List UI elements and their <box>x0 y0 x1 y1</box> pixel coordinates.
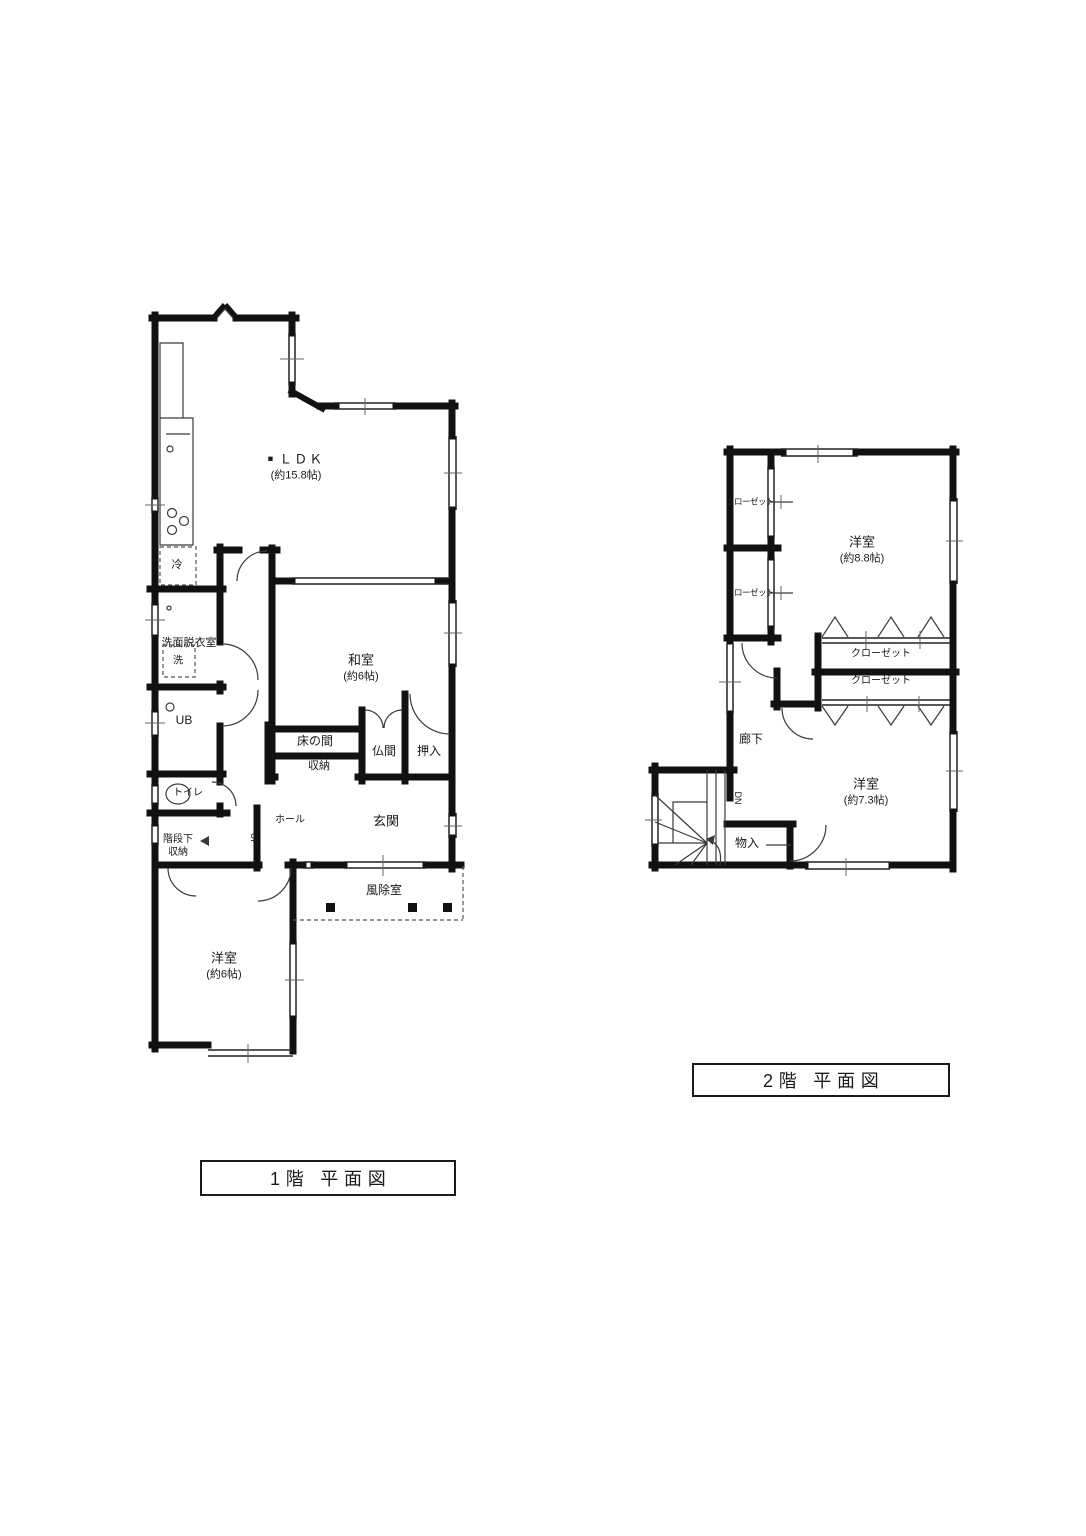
closet-label-mid-top: クローゼット <box>851 648 911 661</box>
closet-label-left-bottom: クローゼット <box>726 587 774 598</box>
sink-faucet <box>167 446 173 452</box>
floor2-door-arcs <box>742 643 826 861</box>
stove-burner-3 <box>168 526 177 535</box>
floor1-title: 1階 平面図 <box>200 1160 456 1196</box>
room-label-toilet: トイレ <box>173 787 203 800</box>
shower-drain <box>166 703 174 711</box>
floor2-windows <box>652 449 957 869</box>
room-label-fridge: 冷 <box>172 558 183 572</box>
stove-burner-2 <box>180 517 189 526</box>
room-label-yoshitsu6: 洋室 (約6帖) <box>206 950 241 981</box>
floor2-ticks <box>645 445 963 876</box>
room-label-kaidanshita: 階段下 収納 <box>163 833 193 859</box>
basin-faucet <box>167 606 171 610</box>
room-label-hall: ホール <box>275 814 305 827</box>
room-label-oshiire: 押入 <box>417 744 441 760</box>
room-label-washitsu: 和室 (約6帖) <box>343 652 378 683</box>
floor1-plan <box>145 305 463 1063</box>
room-label-tokonoma: 床の間 <box>297 734 333 750</box>
room-label-fujoshitsu: 風除室 <box>366 883 402 899</box>
room-label-ub: UB <box>176 713 193 729</box>
room-label-washer: 洗 <box>173 655 183 668</box>
room-label-shunou: 収納 <box>308 759 330 773</box>
floorplan-canvas <box>0 0 1086 1536</box>
closet-label-mid-bottom: クローゼット <box>851 675 911 688</box>
room-label-senmen: 洗面脱衣室 <box>162 636 217 650</box>
room-label-mononyu: 物入 <box>735 836 759 852</box>
ldk-bullet-icon: ■ <box>268 453 273 463</box>
vestibule-posts <box>326 903 452 912</box>
floor1-walls <box>150 315 461 1051</box>
floor2-title: 2階 平面図 <box>692 1063 950 1097</box>
room-label-butsuma: 仏間 <box>372 744 396 760</box>
stove-burner-1 <box>168 509 177 518</box>
room-label-ldk: ■ＬＤＫ (約15.8帖) <box>268 451 324 482</box>
room-label-roka: 廊下 <box>739 732 763 748</box>
closet-label-left-top: クローゼット <box>726 496 774 507</box>
stairs-up-label: UP <box>247 833 259 846</box>
stairs-dn-label: DN <box>731 792 743 805</box>
floor2-plan <box>645 445 963 876</box>
room-label-genkan: 玄関 <box>373 814 399 831</box>
floorplan-page: ■ＬＤＫ (約15.8帖) 冷 洗面脱衣室 洗 UB 和室 (約6帖) 床の間 … <box>0 0 1086 1536</box>
room-label-yoshitsu73: 洋室 (約7.3帖) <box>844 776 889 807</box>
stairs-up-arrowhead <box>200 836 209 846</box>
room-label-yoshitsu88: 洋室 (約8.8帖) <box>840 534 885 565</box>
